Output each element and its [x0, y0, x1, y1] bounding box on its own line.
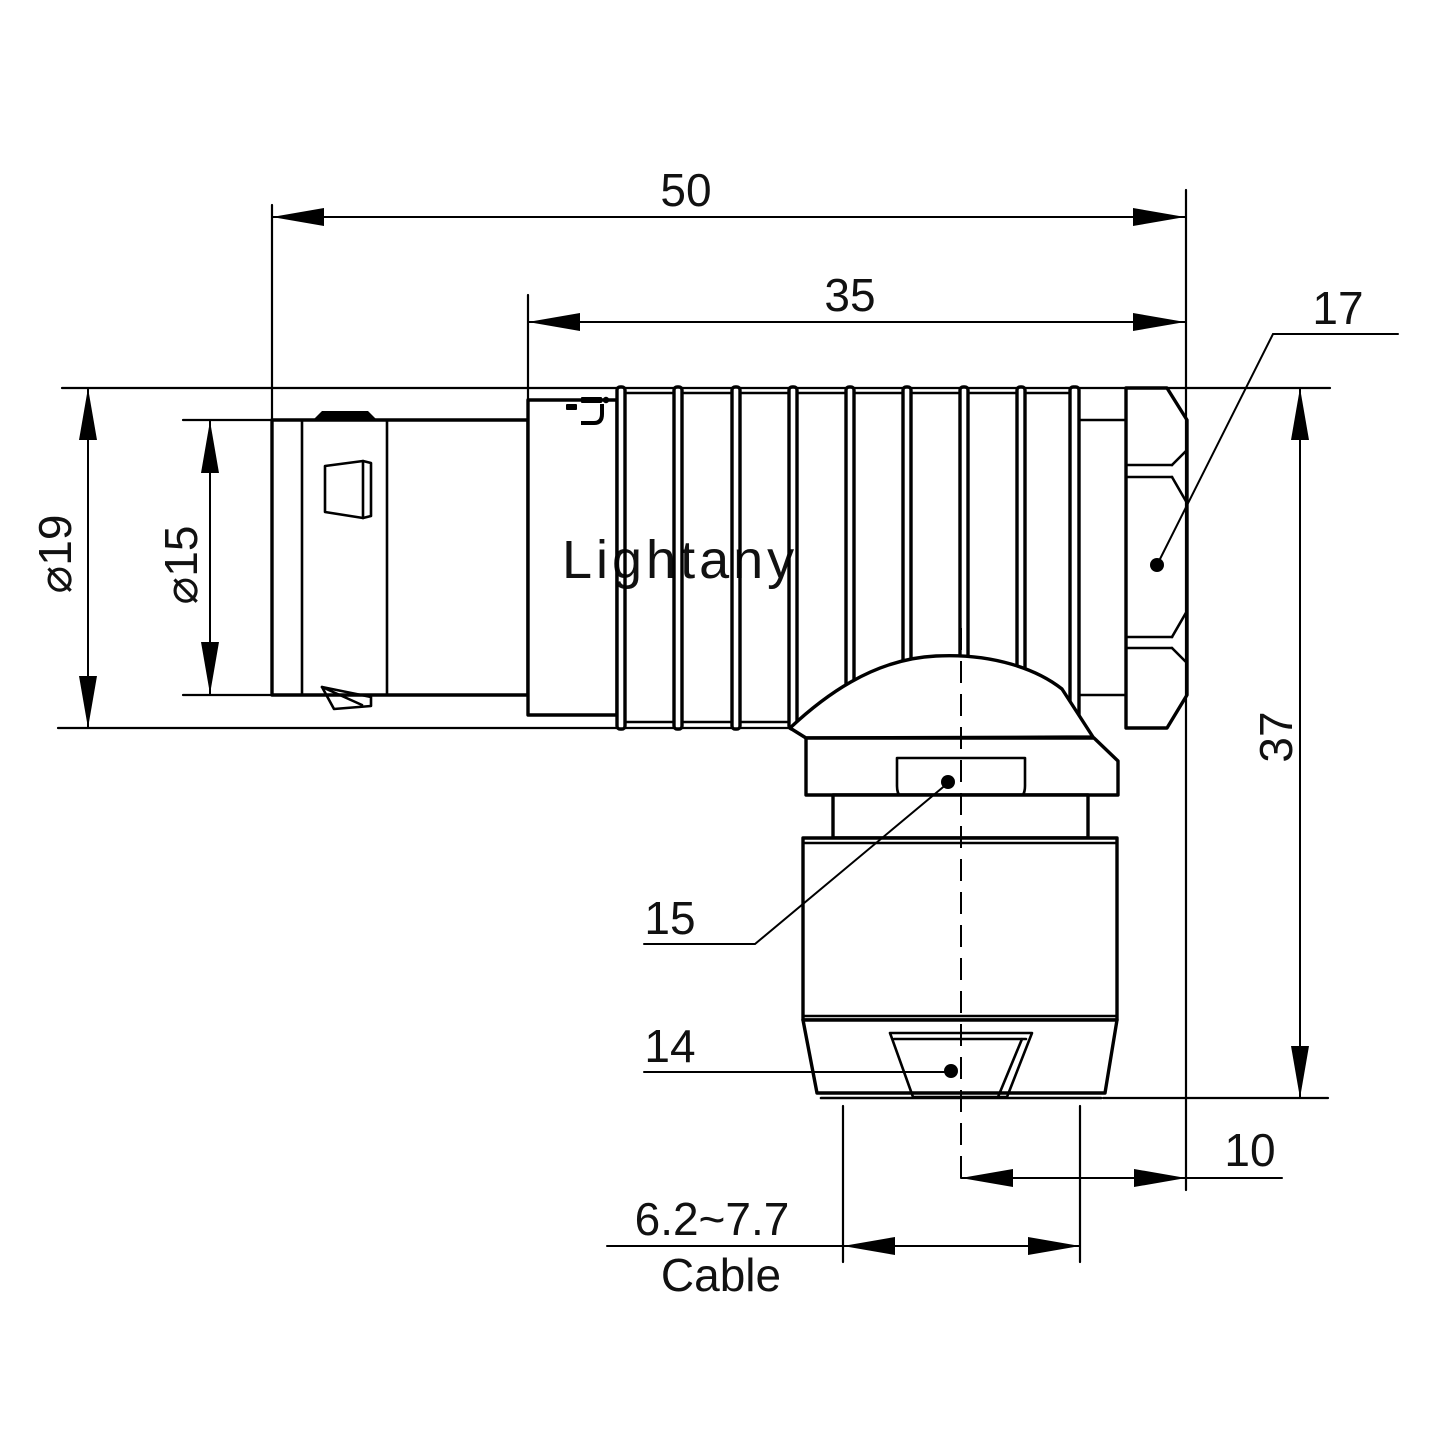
dim-overall-length-label: 50: [660, 164, 711, 216]
rib: [846, 387, 854, 729]
rear-neck: [1079, 420, 1126, 695]
leader-dot-15: [941, 775, 955, 789]
leader-dot-14: [944, 1064, 958, 1078]
arrowhead: [528, 313, 580, 331]
arrowhead: [1291, 1046, 1309, 1098]
front-plug-barrel: [272, 420, 528, 695]
dim-clamp-nut-label: 15: [644, 892, 695, 944]
elbow-dome: [790, 656, 1093, 738]
hex-nut: [1126, 388, 1187, 728]
leader-17: [1157, 334, 1398, 565]
arrowhead: [272, 208, 324, 226]
leader-dot-17: [1150, 558, 1164, 572]
hex-nut-outline: [1126, 388, 1187, 728]
elbow-and-clamp: [790, 628, 1118, 1183]
dim-tail-nut-label: 14: [644, 1020, 695, 1072]
connector-dimension-drawing: 50 35 ⌀19 ⌀15 37 10 6.2~7.7: [0, 0, 1440, 1440]
arrowhead: [79, 388, 97, 440]
dimensions: 50 35 ⌀19 ⌀15 37 10 6.2~7.7: [29, 164, 1328, 1301]
arrowhead: [79, 676, 97, 728]
arrowhead: [961, 1169, 1013, 1187]
arrowhead: [1028, 1237, 1080, 1255]
arrowhead: [1134, 1169, 1186, 1187]
dim-outer-dia-label: ⌀19: [29, 515, 81, 594]
dim-height-label: 37: [1250, 711, 1302, 762]
arrowhead: [843, 1237, 895, 1255]
technical-drawing-page: 50 35 ⌀19 ⌀15 37 10 6.2~7.7: [0, 0, 1440, 1440]
dim-cable-range-label: 6.2~7.7: [635, 1193, 790, 1245]
dim-front-dia-label: ⌀15: [155, 526, 207, 605]
cable-word-label: Cable: [661, 1249, 781, 1301]
arrowhead: [1133, 313, 1185, 331]
arrowhead: [1291, 388, 1309, 440]
engraving-dash: [566, 404, 577, 410]
key-bump: [313, 411, 377, 420]
dim-hex-flats-label: 17: [1312, 282, 1363, 334]
dim-body-length-label: 35: [824, 269, 875, 321]
watermark-text: Lightany: [562, 530, 798, 590]
dim-axis-offset-label: 10: [1224, 1124, 1275, 1176]
engraving-bar: [581, 397, 602, 403]
engraving-dot: [603, 397, 609, 403]
arrowhead: [201, 642, 219, 694]
arrowhead: [201, 421, 219, 473]
rib: [1070, 387, 1079, 729]
arrowhead: [1133, 208, 1185, 226]
